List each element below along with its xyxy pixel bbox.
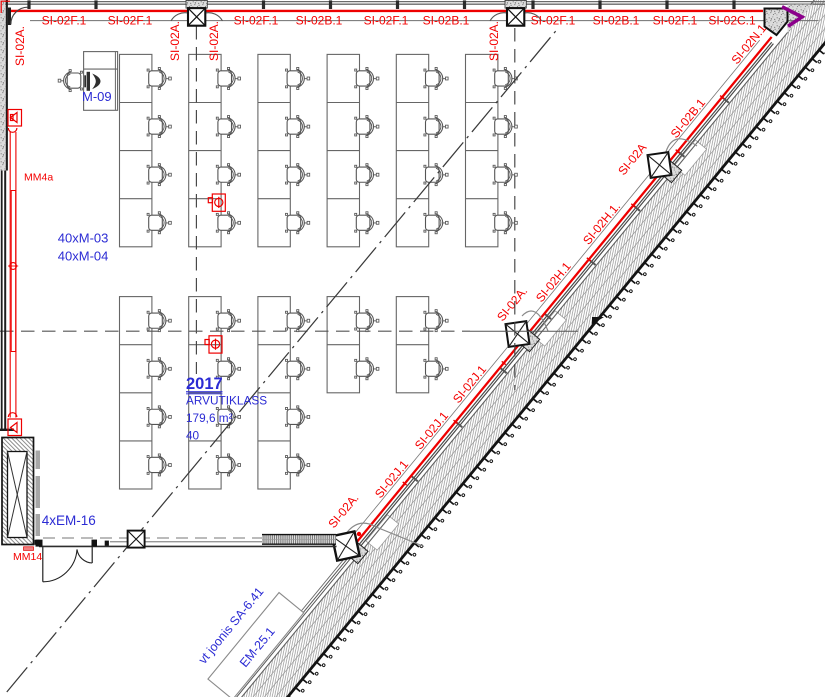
svg-text:SI-02J.1: SI-02J.1 [412,409,451,453]
svg-text:SI-02B.1: SI-02B.1 [296,14,343,28]
svg-text:SI-02J.1: SI-02J.1 [450,362,489,406]
svg-text:SI-02F.1: SI-02F.1 [531,14,576,28]
svg-text:40xM-04: 40xM-04 [58,249,109,264]
svg-text:SI-02A.: SI-02A. [494,284,530,324]
svg-text:MM4a: MM4a [24,172,53,184]
svg-text:ARVUTIKLASS: ARVUTIKLASS [186,393,267,407]
svg-text:SI-02B.1: SI-02B.1 [423,14,470,28]
svg-text:SI-02F.1: SI-02F.1 [108,14,153,28]
svg-text:SI-02B.1: SI-02B.1 [668,96,709,141]
svg-text:4xEM-16: 4xEM-16 [42,513,96,528]
svg-text:SI-02A.: SI-02A. [487,21,501,61]
svg-text:SI-02A: SI-02A [615,141,649,178]
svg-text:MM14: MM14 [13,551,42,563]
svg-text:SI-02A.: SI-02A. [13,26,27,66]
svg-text:SI-02C.1: SI-02C.1 [708,14,756,28]
svg-text:179,6 m²: 179,6 m² [186,411,233,425]
svg-text:SI-02F.1: SI-02F.1 [653,14,698,28]
svg-text:M-09: M-09 [82,89,112,104]
svg-text:SI-02F.1: SI-02F.1 [42,14,87,28]
svg-text:SI-02F.1: SI-02F.1 [234,14,279,28]
svg-text:2017: 2017 [186,375,223,393]
svg-text:SI-02A.: SI-02A. [168,21,182,61]
svg-text:SI-02B.1: SI-02B.1 [593,14,640,28]
svg-text:40xM-03: 40xM-03 [58,230,109,245]
svg-text:SI-02A.: SI-02A. [207,21,221,61]
svg-text:SI-02H.1: SI-02H.1 [533,259,574,305]
svg-text:40: 40 [186,429,200,443]
svg-text:SI-02N.1: SI-02N.1 [728,21,769,67]
svg-text:SI-02F.1: SI-02F.1 [364,14,409,28]
svg-text:SI-02J.1: SI-02J.1 [372,457,411,501]
